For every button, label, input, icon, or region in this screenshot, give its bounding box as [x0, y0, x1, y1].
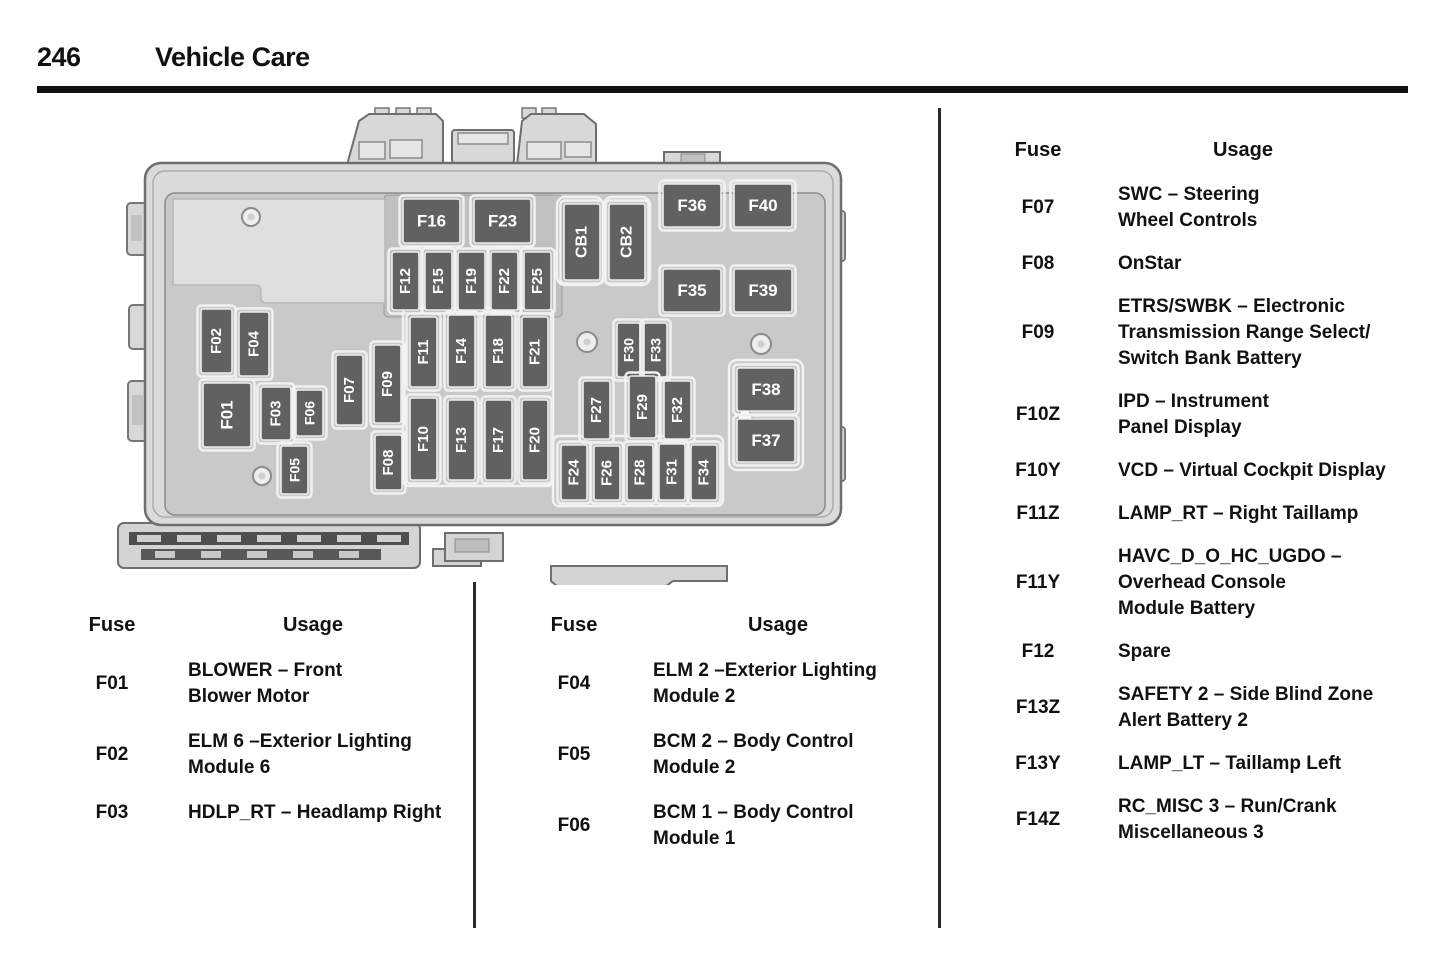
usage-line: Module 2 [653, 755, 854, 781]
fuse-id-cell: F13Z [990, 697, 1086, 719]
fuse-id-cell: F13Y [990, 753, 1086, 775]
fuse-usage-cell: ELM 2 –Exterior LightingModule 2 [653, 658, 877, 710]
fuse-label: F40 [748, 196, 777, 215]
fuse-label: F30 [621, 338, 637, 362]
fuse-cavity-F27: F27 [580, 378, 614, 443]
usage-line: OnStar [1118, 251, 1181, 277]
fuse-cavity-F03: F03 [258, 384, 295, 444]
fuse-cavity-F01: F01 [200, 380, 255, 451]
fuse-label: F17 [490, 427, 507, 453]
fuse-label: F37 [751, 431, 780, 450]
fuse-row: F13ZSAFETY 2 – Side Blind ZoneAlert Batt… [990, 682, 1430, 734]
fuse-label: F28 [632, 460, 649, 486]
fuse-id-cell: F03 [60, 802, 164, 824]
fuse-label: F03 [268, 401, 285, 427]
fuse-cavity-F37: F37 [734, 416, 799, 466]
fuse-label: F14 [453, 337, 470, 364]
fuse-cavity-F04: F04 [236, 309, 273, 380]
fuse-label: F33 [648, 338, 664, 362]
usage-line: Panel Display [1118, 415, 1269, 441]
fuse-cavity-F38: F38 [734, 365, 799, 415]
fuse-id-cell: F05 [520, 744, 628, 766]
fuse-label: F20 [527, 427, 544, 453]
fuse-cavity-F22: F22 [488, 249, 522, 314]
fuse-label: F36 [677, 196, 706, 215]
table-rows: F01BLOWER – FrontBlower MotorF02ELM 6 –E… [60, 658, 470, 826]
fuse-usage-cell: VCD – Virtual Cockpit Display [1118, 458, 1386, 484]
fuse-cavity-F29: F29 [626, 373, 660, 442]
usage-line: Wheel Controls [1118, 208, 1259, 234]
fuse-label: F34 [696, 459, 713, 486]
fuse-usage-cell: ELM 6 –Exterior LightingModule 6 [188, 729, 412, 781]
fuse-usage-cell: LAMP_RT – Right Taillamp [1118, 501, 1358, 527]
usage-line: ELM 6 –Exterior Lighting [188, 729, 412, 755]
fuse-label: F09 [379, 371, 396, 397]
usage-line: IPD – Instrument [1118, 389, 1269, 415]
fuse-row: F04ELM 2 –Exterior LightingModule 2 [520, 658, 930, 710]
usage-line: SWC – Steering [1118, 182, 1259, 208]
fuse-label: F32 [669, 397, 686, 423]
fuse-label: F04 [246, 330, 263, 357]
fuse-label: F12 [397, 268, 414, 294]
fuse-cavity-F23: F23 [471, 196, 535, 247]
fuse-row: F03HDLP_RT – Headlamp Right [60, 800, 470, 826]
fuse-label: F15 [430, 268, 447, 294]
table-rows: F04ELM 2 –Exterior LightingModule 2F05BC… [520, 658, 930, 852]
fuse-label: F19 [463, 268, 480, 294]
usage-line: LAMP_LT – Taillamp Left [1118, 751, 1341, 777]
fuse-usage-cell: OnStar [1118, 251, 1181, 277]
fuse-row: F09ETRS/SWBK – ElectronicTransmission Ra… [990, 294, 1430, 372]
fuse-id-cell: F02 [60, 744, 164, 766]
usage-column-header: Usage [1118, 139, 1368, 162]
usage-line: ETRS/SWBK – Electronic [1118, 294, 1370, 320]
usage-line: Spare [1118, 639, 1171, 665]
fuse-cavity-F26: F26 [591, 443, 624, 504]
fuse-usage-cell: SAFETY 2 – Side Blind ZoneAlert Battery … [1118, 682, 1373, 734]
fuse-cavity-F07: F07 [333, 352, 367, 429]
usage-line: SAFETY 2 – Side Blind Zone [1118, 682, 1373, 708]
usage-line: Module 2 [653, 684, 877, 710]
fuse-cavity-F08: F08 [372, 432, 406, 494]
fuse-label: F18 [490, 338, 507, 364]
usage-line: BCM 1 – Body Control [653, 800, 854, 826]
fuse-row: F11YHAVC_D_O_HC_UGDO –Overhead ConsoleMo… [990, 544, 1430, 622]
fuse-label: F08 [380, 450, 397, 476]
usage-line: Module 1 [653, 826, 854, 852]
fuse-cavity-F11: F11 [407, 314, 441, 391]
fuse-cavity-F02: F02 [198, 306, 236, 377]
table-header: Fuse Usage [60, 614, 470, 637]
usage-line: BCM 2 – Body Control [653, 729, 854, 755]
fuse-cavity-F19: F19 [455, 249, 489, 314]
fuse-cavity-F25: F25 [521, 249, 555, 314]
fuse-label: F38 [751, 380, 780, 399]
fuse-row: F07SWC – SteeringWheel Controls [990, 182, 1430, 234]
usage-line: ELM 2 –Exterior Lighting [653, 658, 877, 684]
fuse-label: F22 [496, 268, 513, 294]
usage-line: BLOWER – Front [188, 658, 342, 684]
fuse-usage-cell: BLOWER – FrontBlower Motor [188, 658, 342, 710]
fuse-column-header: Fuse [520, 614, 628, 637]
usage-line: Blower Motor [188, 684, 342, 710]
fuse-table-middle: Fuse Usage F04ELM 2 –Exterior LightingMo… [520, 614, 930, 852]
table-divider-right [938, 108, 941, 928]
fuse-label: F05 [287, 458, 303, 482]
fuse-usage-cell: BCM 2 – Body ControlModule 2 [653, 729, 854, 781]
fuse-label: F07 [341, 377, 358, 403]
fuse-row: F12Spare [990, 639, 1430, 665]
fuse-usage-cell: IPD – InstrumentPanel Display [1118, 389, 1269, 441]
fuse-cavity-F32: F32 [661, 378, 695, 443]
fuse-cavity-F16: F16 [400, 196, 464, 247]
fuse-id-cell: F10Z [990, 404, 1086, 426]
usage-column-header: Usage [653, 614, 903, 637]
fuse-id-cell: F11Y [990, 572, 1086, 594]
fuse-label: F10 [415, 426, 432, 452]
fuse-row: F02ELM 6 –Exterior LightingModule 6 [60, 729, 470, 781]
fuse-label: F16 [417, 212, 446, 231]
fuse-id-cell: F08 [990, 253, 1086, 275]
fuse-id-cell: F10Y [990, 460, 1086, 482]
table-divider-middle [473, 582, 476, 928]
fuse-cavity-F18: F18 [482, 312, 516, 391]
fuse-cavity-F40: F40 [731, 181, 796, 231]
fuse-label: CB1 [574, 226, 591, 258]
usage-line: Switch Bank Battery [1118, 346, 1370, 372]
fuse-usage-cell: SWC – SteeringWheel Controls [1118, 182, 1259, 234]
usage-line: Module 6 [188, 755, 412, 781]
fuse-usage-cell: HDLP_RT – Headlamp Right [188, 800, 441, 826]
table-rows: F07SWC – SteeringWheel ControlsF08OnStar… [990, 182, 1430, 846]
fuse-label: F24 [566, 459, 583, 486]
usage-line: LAMP_RT – Right Taillamp [1118, 501, 1358, 527]
fuse-usage-cell: RC_MISC 3 – Run/CrankMiscellaneous 3 [1118, 794, 1337, 846]
fuse-column-header: Fuse [990, 139, 1086, 162]
fuse-label: F27 [588, 397, 605, 423]
fuse-cavity-F12: F12 [389, 249, 423, 314]
fuse-row: F11ZLAMP_RT – Right Taillamp [990, 501, 1430, 527]
fuse-usage-cell: LAMP_LT – Taillamp Left [1118, 751, 1341, 777]
usage-line: Alert Battery 2 [1118, 708, 1373, 734]
fuse-label: F35 [677, 281, 706, 300]
fuse-label: F23 [488, 212, 517, 231]
fuse-usage-cell: Spare [1118, 639, 1171, 665]
fuse-label: F01 [218, 400, 237, 429]
table-header: Fuse Usage [990, 139, 1430, 162]
fuse-label: CB2 [619, 226, 636, 258]
fuse-column-header: Fuse [60, 614, 164, 637]
fuse-usage-cell: ETRS/SWBK – ElectronicTransmission Range… [1118, 294, 1370, 372]
fuse-label: F02 [208, 328, 225, 354]
fuse-id-cell: F09 [990, 322, 1086, 344]
header-rule [37, 86, 1408, 93]
usage-line: Transmission Range Select/ [1118, 320, 1370, 346]
fuse-row: F06BCM 1 – Body ControlModule 1 [520, 800, 930, 852]
fuse-cavity-CB1: CB1 [561, 201, 604, 284]
fuse-cavity-F05: F05 [278, 443, 312, 498]
fuse-cavity-F17: F17 [482, 397, 516, 484]
fuse-usage-cell: HAVC_D_O_HC_UGDO –Overhead ConsoleModule… [1118, 544, 1341, 622]
fuse-id-cell: F12 [990, 641, 1086, 663]
fuse-label: F29 [634, 394, 651, 420]
fuse-label: F21 [527, 339, 544, 365]
bottom-connector-strip [118, 523, 727, 585]
fuse-label: F31 [664, 459, 681, 485]
fuse-cavity-F13: F13 [445, 397, 479, 484]
fuse-cavity-F14: F14 [445, 312, 479, 391]
fuse-cavity-F15: F15 [422, 249, 456, 314]
fuse-cavity-F10: F10 [407, 395, 441, 484]
fuse-cavity-F39: F39 [731, 266, 796, 316]
fuse-row: F14ZRC_MISC 3 – Run/CrankMiscellaneous 3 [990, 794, 1430, 846]
fuse-cavity-F36: F36 [660, 181, 725, 231]
fuse-cavity-F09: F09 [371, 342, 405, 427]
usage-line: VCD – Virtual Cockpit Display [1118, 458, 1386, 484]
fuse-label: F26 [599, 460, 616, 486]
fuse-label: F25 [529, 268, 546, 294]
fuse-cavity-F34: F34 [688, 442, 721, 504]
fuse-cavity-F21: F21 [519, 314, 552, 391]
manual-page: 246 Vehicle Care [0, 0, 1445, 961]
fuse-cavity-F35: F35 [660, 266, 725, 316]
fuse-table-right: Fuse Usage F07SWC – SteeringWheel Contro… [990, 139, 1430, 846]
usage-line: Module Battery [1118, 596, 1341, 622]
top-tabs [347, 108, 720, 165]
fuse-row: F10YVCD – Virtual Cockpit Display [990, 458, 1430, 484]
usage-line: Overhead Console [1118, 570, 1341, 596]
fuse-cavity-F28: F28 [624, 442, 657, 504]
fuse-label: F39 [748, 281, 777, 300]
fuse-row: F13YLAMP_LT – Taillamp Left [990, 751, 1430, 777]
fuse-cavity-F20: F20 [519, 397, 552, 484]
table-header: Fuse Usage [520, 614, 930, 637]
fuse-id-cell: F14Z [990, 809, 1086, 831]
usage-line: Miscellaneous 3 [1118, 820, 1337, 846]
fuse-id-cell: F01 [60, 673, 164, 695]
fuse-row: F08OnStar [990, 251, 1430, 277]
fuse-cavity-CB2: CB2 [606, 201, 649, 284]
fuse-box-diagram: F16F23F36F40F35F39F38F37CB1CB2F12F15F19F… [115, 105, 915, 585]
usage-line: HDLP_RT – Headlamp Right [188, 800, 441, 826]
page-title: Vehicle Care [155, 42, 310, 73]
fuse-cavity-F06: F06 [293, 387, 327, 440]
usage-line: RC_MISC 3 – Run/Crank [1118, 794, 1337, 820]
fuse-row: F10ZIPD – InstrumentPanel Display [990, 389, 1430, 441]
fuse-id-cell: F04 [520, 673, 628, 695]
page-number: 246 [37, 42, 81, 73]
fuse-row: F01BLOWER – FrontBlower Motor [60, 658, 470, 710]
fuse-label: F13 [453, 427, 470, 453]
fuse-row: F05BCM 2 – Body ControlModule 2 [520, 729, 930, 781]
fuse-cavity-F31: F31 [656, 441, 689, 504]
fuse-id-cell: F11Z [990, 503, 1086, 525]
fuse-label: F06 [302, 401, 318, 425]
fuse-id-cell: F07 [990, 197, 1086, 219]
fuse-id-cell: F06 [520, 815, 628, 837]
fuse-label: F11 [415, 339, 432, 364]
usage-line: HAVC_D_O_HC_UGDO – [1118, 544, 1341, 570]
fuse-usage-cell: BCM 1 – Body ControlModule 1 [653, 800, 854, 852]
fuse-cavity-F24: F24 [558, 442, 591, 504]
usage-column-header: Usage [188, 614, 438, 637]
fuse-table-left: Fuse Usage F01BLOWER – FrontBlower Motor… [60, 614, 470, 826]
